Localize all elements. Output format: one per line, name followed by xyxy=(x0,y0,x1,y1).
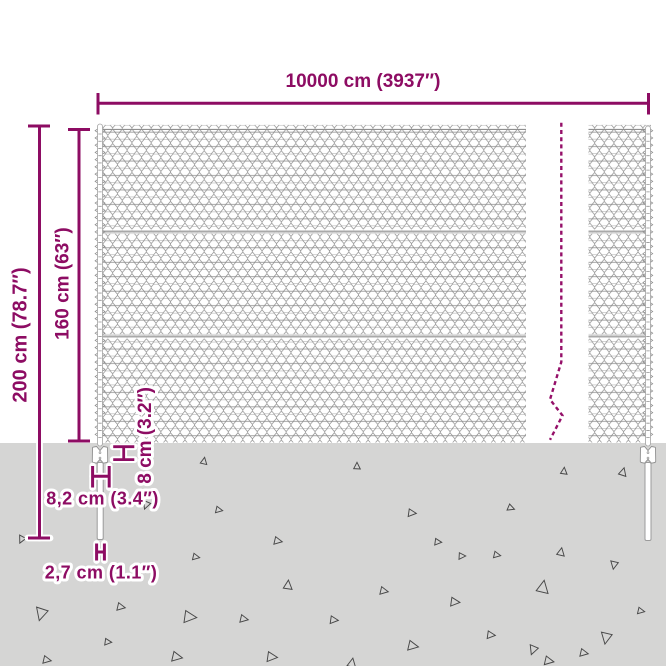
svg-text:160 cm (63″): 160 cm (63″) xyxy=(53,227,74,340)
svg-text:2,7 cm (1.1″): 2,7 cm (1.1″) xyxy=(45,563,158,583)
svg-text:8,2 cm (3.4″): 8,2 cm (3.4″) xyxy=(46,488,159,508)
svg-text:8 cm (3.2″): 8 cm (3.2″) xyxy=(135,387,156,484)
svg-text:200 cm (78.7″): 200 cm (78.7″) xyxy=(10,267,32,402)
svg-text:10000 cm (3937″): 10000 cm (3937″) xyxy=(286,71,441,92)
